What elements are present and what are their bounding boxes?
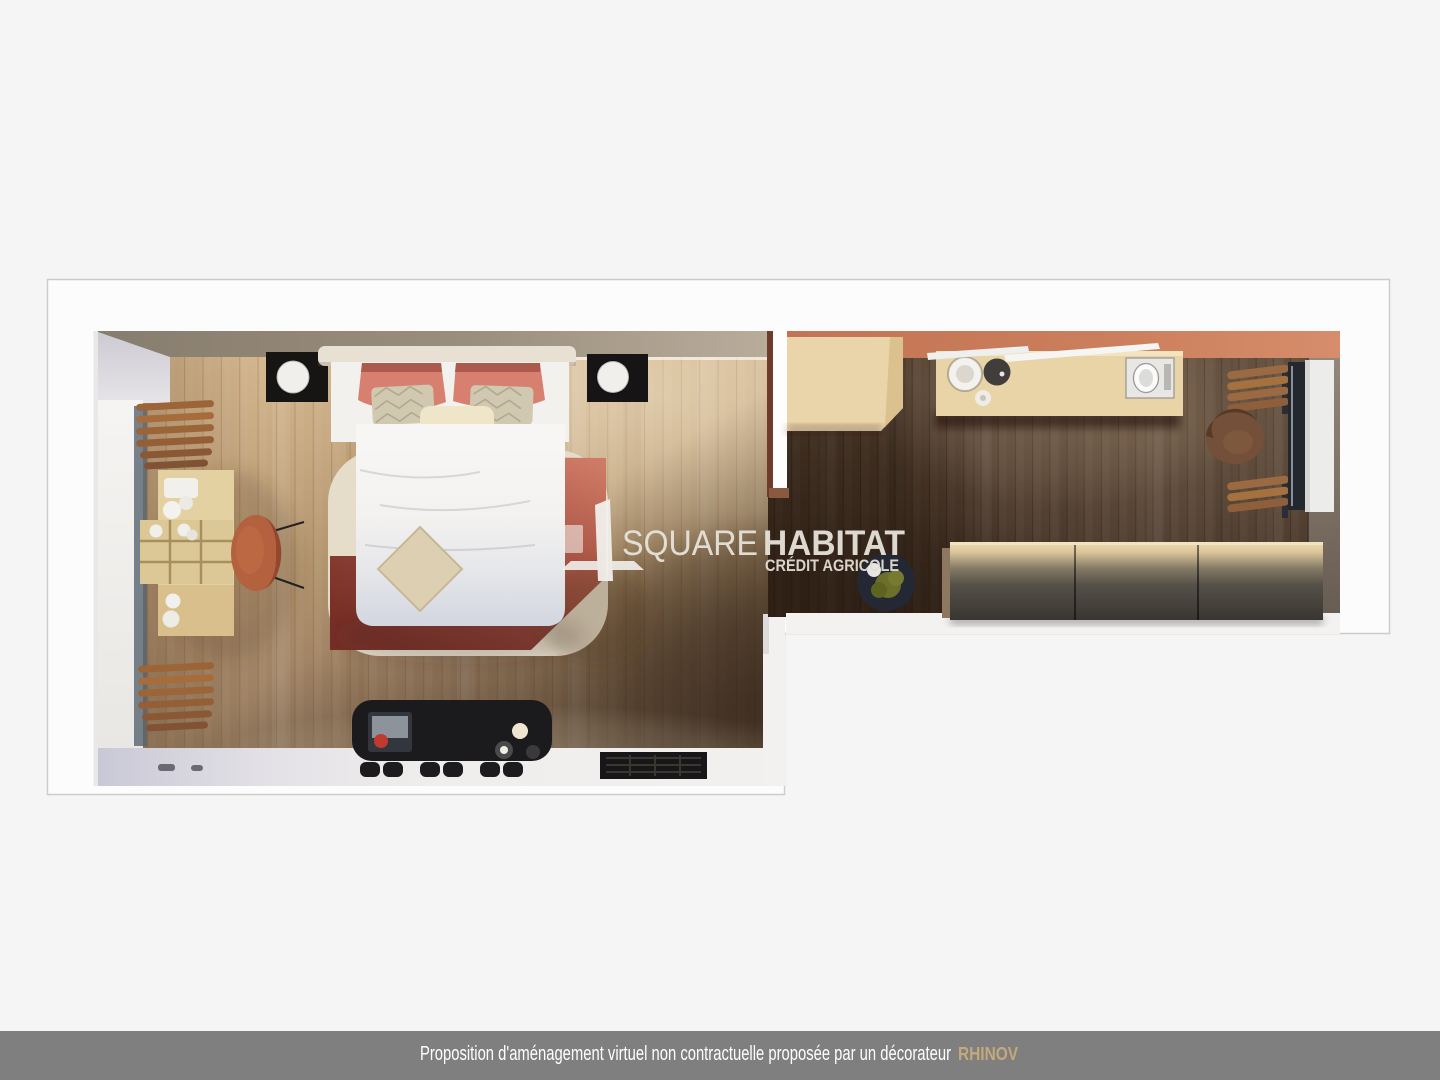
svg-text:CRÉDIT AGRICOLE: CRÉDIT AGRICOLE bbox=[765, 556, 899, 575]
svg-text:SQUARE: SQUARE bbox=[622, 524, 758, 563]
svg-text:RHINOV: RHINOV bbox=[958, 1044, 1018, 1064]
svg-text:Proposition d'aménagement virt: Proposition d'aménagement virtuel non co… bbox=[420, 1043, 951, 1065]
